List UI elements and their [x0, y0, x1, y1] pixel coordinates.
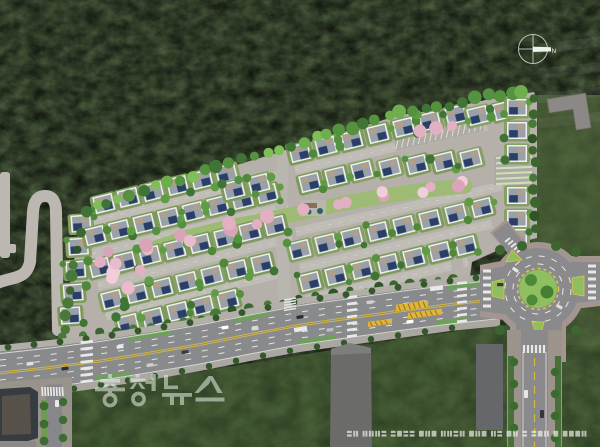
svg-text:N: N [552, 48, 557, 55]
